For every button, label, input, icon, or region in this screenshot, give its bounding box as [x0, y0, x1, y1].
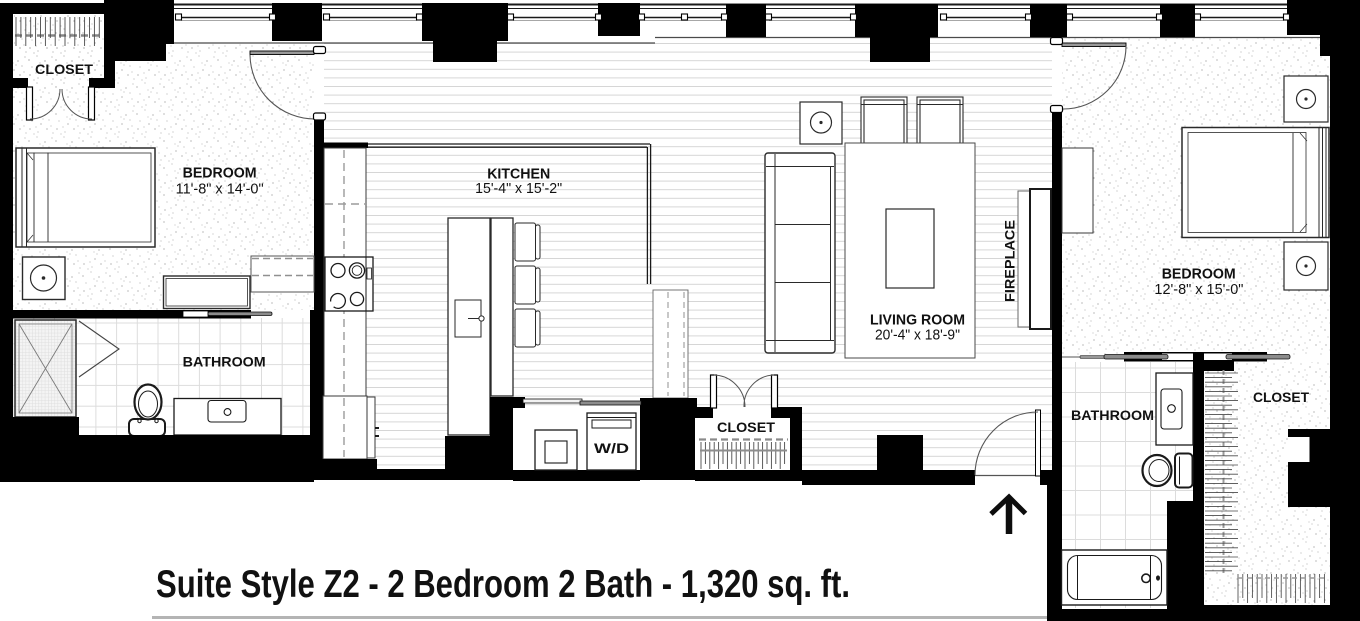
svg-text:BEDROOM: BEDROOM: [1162, 267, 1236, 283]
svg-text:BATHROOM: BATHROOM: [183, 354, 266, 369]
svg-text:20'-4" x 18'-9": 20'-4" x 18'-9": [875, 328, 960, 344]
svg-text:FIREPLACE: FIREPLACE: [1002, 220, 1018, 302]
svg-text:CLOSET: CLOSET: [1253, 389, 1309, 405]
svg-text:LIVING ROOM: LIVING ROOM: [870, 313, 965, 329]
svg-text:Suite Style Z2 - 2 Bedroom 2 B: Suite Style Z2 - 2 Bedroom 2 Bath - 1,32…: [156, 563, 850, 606]
svg-text:CLOSET: CLOSET: [35, 61, 93, 77]
svg-text:CLOSET: CLOSET: [717, 419, 775, 435]
svg-text:BATHROOM: BATHROOM: [1071, 408, 1154, 423]
svg-text:W/D: W/D: [594, 440, 629, 456]
svg-text:12'-8" x 15'-0": 12'-8" x 15'-0": [1154, 282, 1243, 298]
svg-text:BEDROOM: BEDROOM: [183, 166, 257, 182]
svg-text:11'-8" x 14'-0": 11'-8" x 14'-0": [176, 182, 264, 198]
svg-text:15'-4" x 15'-2": 15'-4" x 15'-2": [475, 181, 562, 197]
